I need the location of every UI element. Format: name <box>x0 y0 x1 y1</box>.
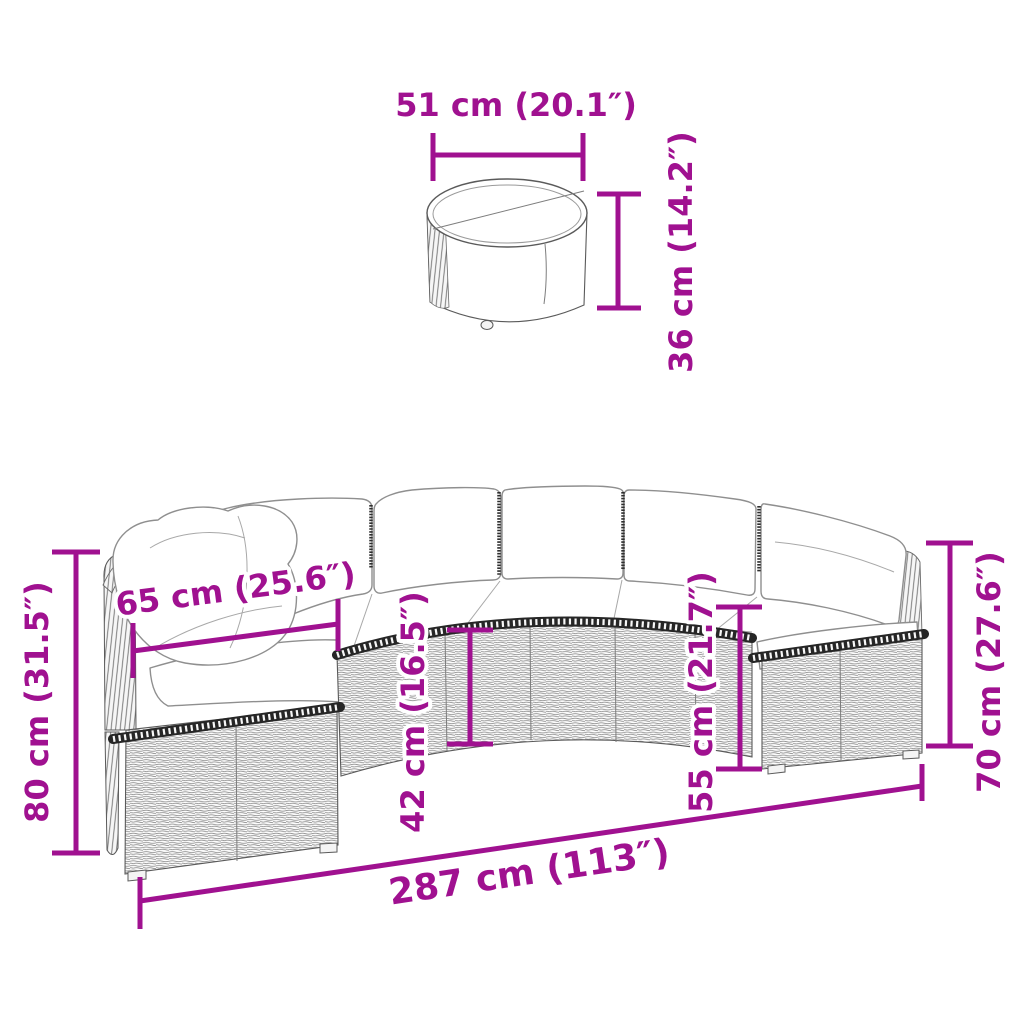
sofa-foot <box>903 750 919 759</box>
dim-back-height-right: 70 cm (27.6″) <box>926 543 1008 793</box>
back-pillow-2 <box>374 488 501 594</box>
dim-back-height-left: 80 cm (31.5″) <box>18 552 100 853</box>
dim-table-height: 36 cm (14.2″) <box>597 131 700 373</box>
dim-seat-front-height-label: 42 cm (16.5″) <box>394 591 432 833</box>
sofa-foot <box>128 870 146 881</box>
diagram-canvas: 51 cm (20.1″) 36 cm (14.2″) 80 cm (31.5″… <box>0 0 1024 1024</box>
dim-seat-height-label: 55 cm (21.7″) <box>682 571 720 813</box>
sofa-foot <box>768 764 785 774</box>
seat-seam-line <box>354 594 372 646</box>
dim-table-width-label: 51 cm (20.1″) <box>395 86 637 124</box>
dim-table-height-label: 36 cm (14.2″) <box>662 131 700 373</box>
table-body-seam <box>544 244 546 304</box>
back-pillow-5 <box>761 504 906 627</box>
sofa-drawing <box>103 486 924 881</box>
dim-back-height-left-label: 80 cm (31.5″) <box>18 581 56 823</box>
dim-table-width: 51 cm (20.1″) <box>395 86 637 181</box>
sofa-foot <box>320 843 337 853</box>
table-top <box>427 179 587 247</box>
table-foot <box>481 321 493 330</box>
dim-back-height-right-label: 70 cm (27.6″) <box>970 551 1008 793</box>
dimension-diagram: 51 cm (20.1″) 36 cm (14.2″) 80 cm (31.5″… <box>0 0 1024 1024</box>
left-armrest-leg <box>105 732 119 855</box>
back-pillow-3 <box>502 486 624 579</box>
side-table-drawing <box>427 179 587 330</box>
